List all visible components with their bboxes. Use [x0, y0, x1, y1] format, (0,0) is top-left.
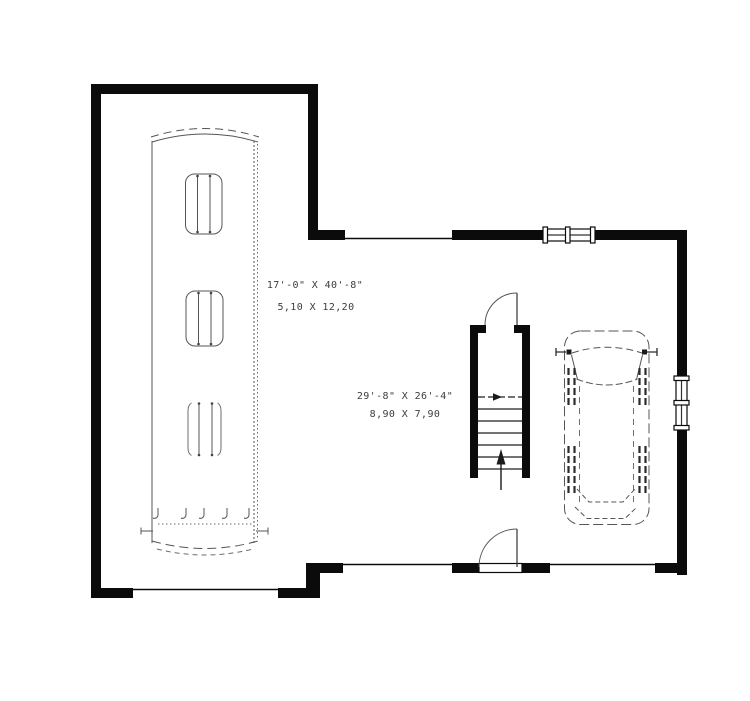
door-threshold [479, 564, 522, 573]
rv-front-edge [152, 134, 258, 142]
window-right-wall [674, 376, 689, 430]
wall-segment-bottom-right-a [320, 563, 343, 573]
vent-arc-left [188, 403, 192, 456]
vent-dot [197, 292, 200, 295]
window-tick [591, 227, 596, 243]
wall-segment-right-b [677, 428, 687, 575]
van-rear-line-2 [575, 507, 637, 519]
vent-arc-right [218, 403, 222, 456]
entry-door [479, 529, 522, 573]
garage-dimension-metric: 8,90 X 7,90 [370, 409, 441, 420]
door-swing-arc [479, 529, 517, 567]
vent-outline [186, 291, 223, 346]
wheel-front-left [569, 368, 575, 408]
stair-wall-left [470, 325, 478, 478]
hook-mark-icon [222, 508, 227, 518]
rv-bay-dimension-metric: 5,10 X 12,20 [277, 302, 354, 313]
wheel-rear-left [569, 446, 575, 495]
stair-cut-arrow-icon [493, 393, 502, 401]
vent-outline [186, 174, 223, 234]
rv-motorhome [141, 129, 268, 556]
vent-dot [209, 175, 212, 178]
vent-dot [210, 292, 213, 295]
vent-dot [196, 231, 199, 234]
wall-segment-bottom-right-c [522, 563, 550, 573]
van-a-pillars [572, 355, 643, 380]
vent-dot [209, 231, 212, 234]
rv-mirrors [141, 528, 268, 535]
hook-mark-icon [244, 508, 249, 518]
vent-lines [199, 404, 212, 456]
vent-dot [198, 402, 201, 405]
window-top-wall [543, 227, 595, 243]
window-tick [674, 401, 689, 406]
wall-segment-bottom-left-a [91, 588, 133, 598]
window-tick [543, 227, 548, 243]
van-hood-line [572, 347, 642, 353]
stair-door-jamb-right [514, 325, 530, 333]
wall-segment-upper-right-of-left-section [308, 84, 318, 240]
window-tick [674, 376, 689, 381]
van-rear-line-1 [577, 489, 635, 502]
van-windshield [577, 379, 638, 385]
exterior-walls [91, 84, 687, 598]
rv-rear-bumper-dashed [157, 549, 253, 555]
van [556, 331, 657, 525]
rv-roof-vent-3 [188, 402, 221, 456]
hook-mark-icon [153, 508, 158, 518]
vent-lines [198, 176, 211, 232]
rv-roof-vent-2 [186, 291, 223, 346]
window-tick [566, 227, 571, 243]
stair-door-swing-arc [485, 293, 517, 325]
wheel-rear-right [640, 446, 646, 495]
wall-segment-top-right-b [452, 230, 545, 240]
hook-mark-icon [199, 508, 204, 518]
rv-hitch-marks [153, 508, 249, 518]
van-body-outline [565, 331, 650, 525]
wall-segment-left [91, 84, 101, 598]
wall-segment-right-a [677, 230, 687, 378]
wheel-front-right [640, 368, 646, 408]
vent-dot [211, 402, 214, 405]
wall-segment-top-right-a [308, 230, 345, 240]
rv-front-bumper-dashed [151, 129, 259, 138]
floor-plan-drawing: 17'-0" X 40'-8" 5,10 X 12,20 29'-8" X 26… [0, 0, 750, 701]
wall-segment-bottom-right-d [655, 563, 687, 573]
rv-roof-vent-1 [186, 174, 223, 234]
dimension-labels: 17'-0" X 40'-8" 5,10 X 12,20 29'-8" X 26… [267, 280, 453, 420]
hook-mark-icon [181, 508, 186, 518]
floor-plan-canvas: 17'-0" X 40'-8" 5,10 X 12,20 29'-8" X 26… [0, 0, 750, 701]
rv-bay-dimension-imperial: 17'-0" X 40'-8" [267, 280, 363, 291]
stair-door-jamb-left [470, 325, 486, 333]
van-mirror-base [642, 350, 647, 355]
rv-mirror-left-icon [141, 528, 153, 535]
stair-wall-right [522, 325, 530, 478]
wall-segment-jog [306, 563, 320, 598]
wall-segment-top-right-c [593, 230, 687, 240]
vent-dot [211, 454, 214, 457]
staircase [470, 293, 530, 490]
wall-segment-top-left-section [91, 84, 318, 94]
vent-dot [196, 175, 199, 178]
vent-lines [199, 293, 212, 344]
wall-segment-bottom-right-b [452, 563, 480, 573]
vent-dot [198, 454, 201, 457]
window-tick [674, 426, 689, 431]
rv-rear-edge-dashed [152, 541, 258, 549]
vent-dot [197, 343, 200, 346]
van-mirror-base [567, 350, 572, 355]
vent-dot [210, 343, 213, 346]
van-rear [575, 489, 637, 519]
garage-dimension-imperial: 29'-8" X 26'-4" [357, 391, 453, 402]
